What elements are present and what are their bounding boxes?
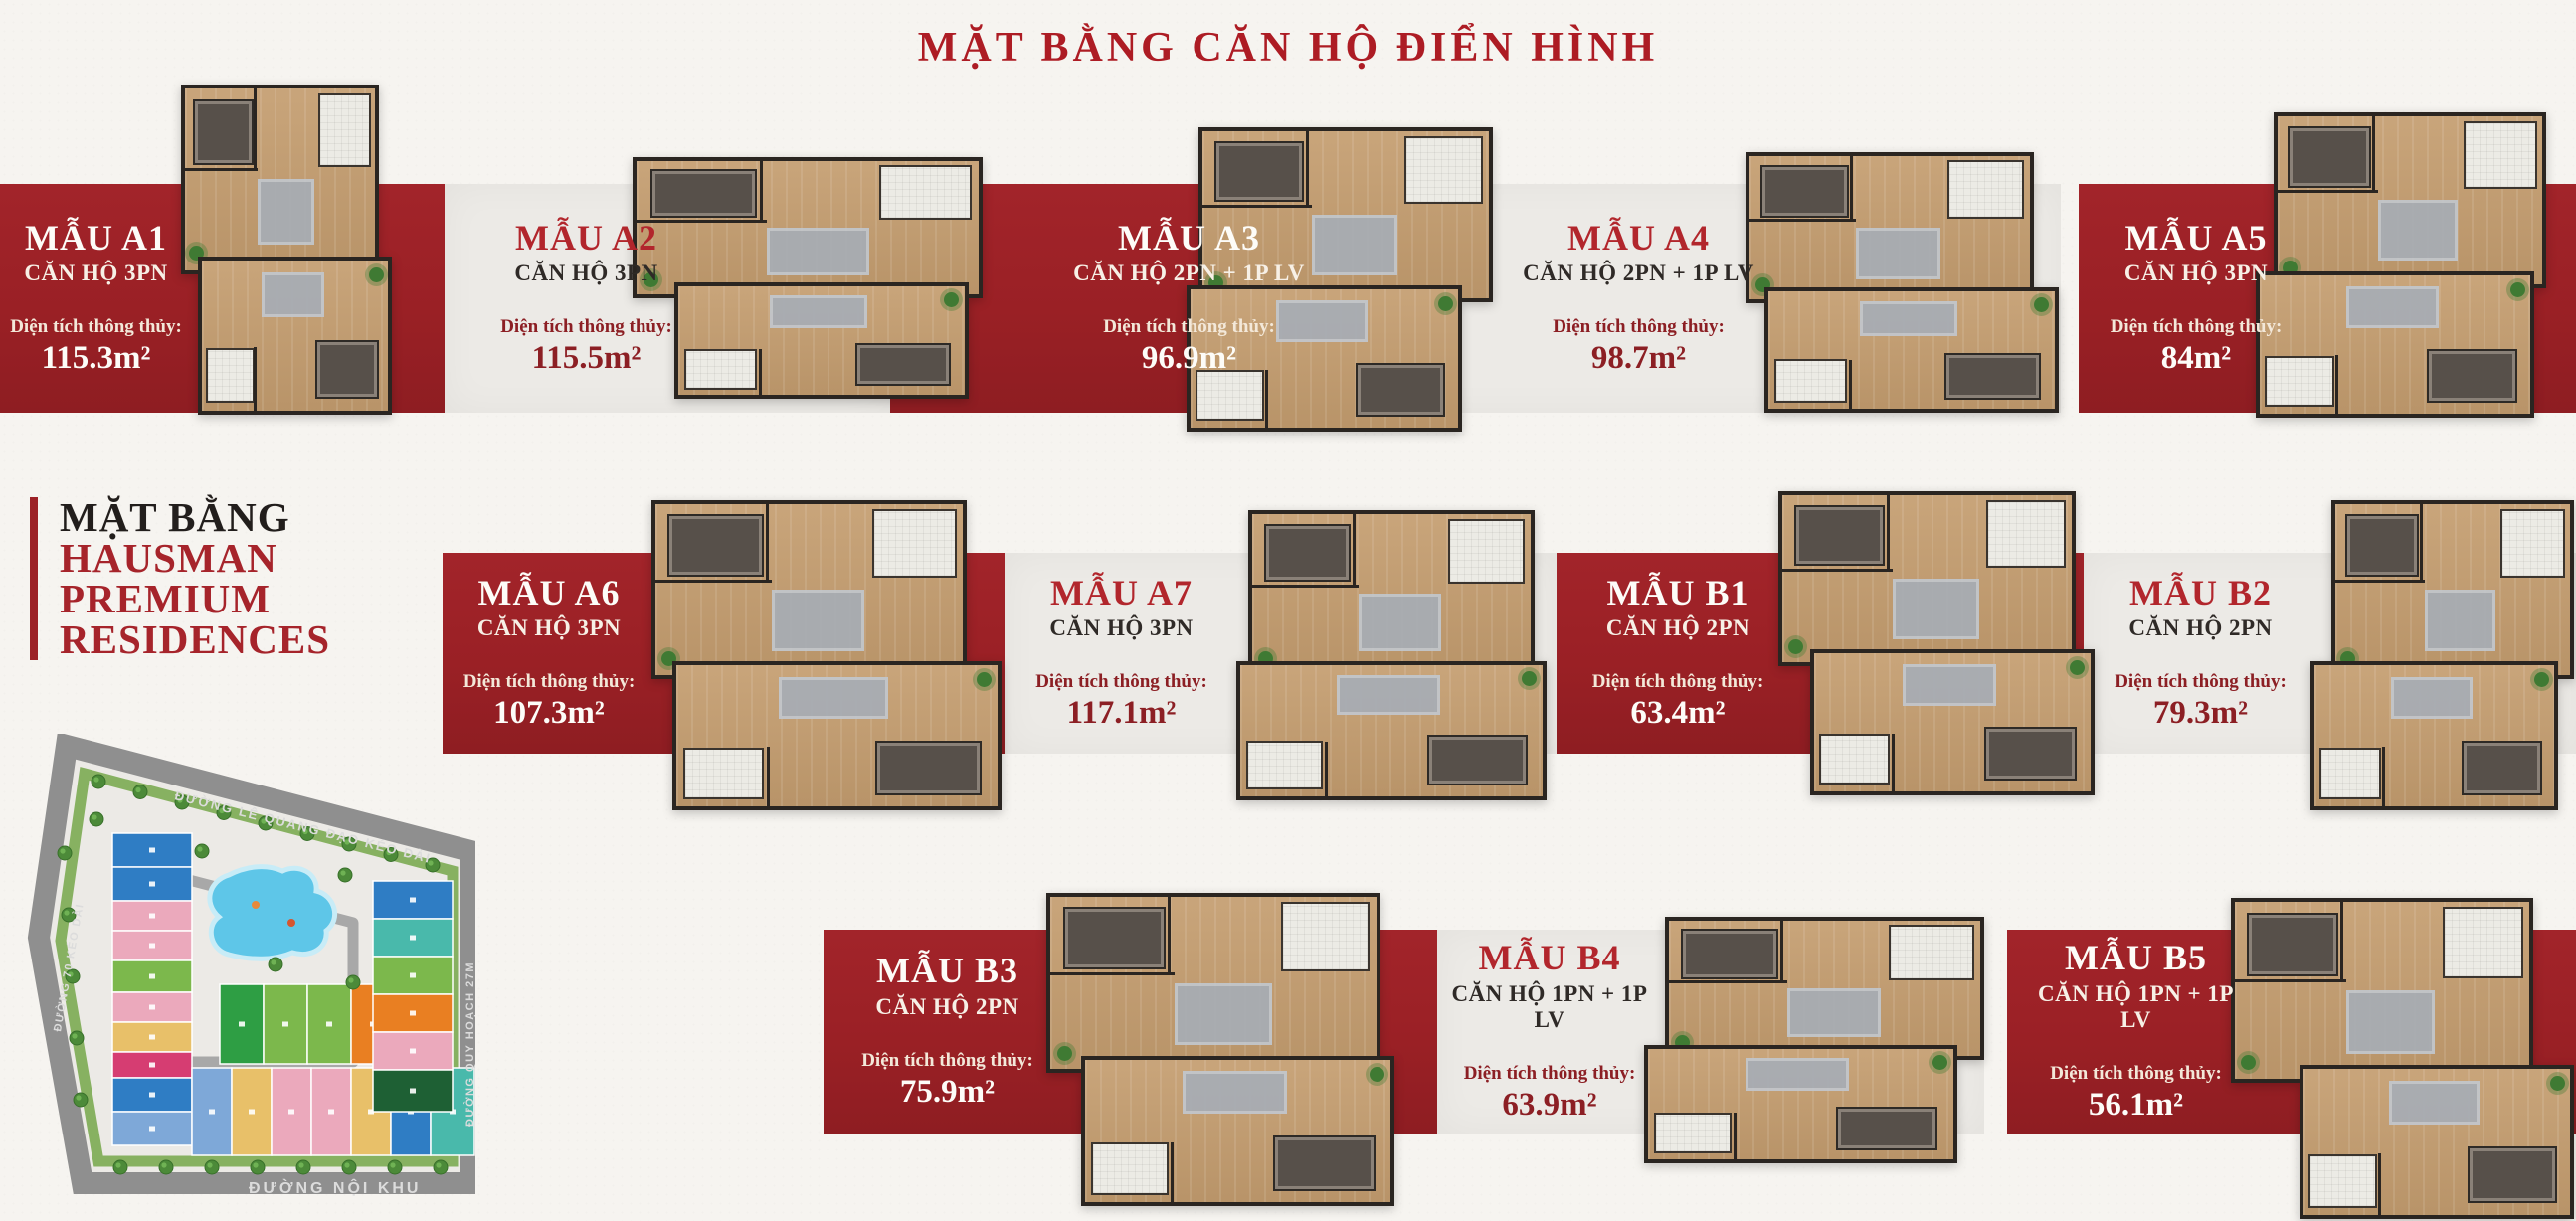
- map-tree-highlight: [72, 1033, 77, 1038]
- map-building-window: [410, 1011, 416, 1016]
- unit-type: CĂN HỘ 2PN: [1606, 615, 1749, 641]
- plan-detail: [254, 88, 257, 168]
- unit-area-value: 115.5m²: [532, 340, 642, 377]
- map-tree: [205, 1160, 219, 1174]
- plan-section: [1778, 491, 2076, 666]
- plan-section: [651, 500, 967, 679]
- unit-area-label: Diện tích thông thủy:: [1464, 1063, 1636, 1085]
- plan-detail: [193, 99, 254, 165]
- floorplan-a4: [1746, 152, 2059, 413]
- map-building-window: [410, 1089, 416, 1094]
- map-tree: [90, 812, 103, 826]
- plan-detail: [369, 267, 384, 282]
- plan-section: [2310, 661, 2558, 810]
- plan-detail: [2427, 349, 2517, 403]
- unit-card-b4: MẪU B4 CĂN HỘ 1PN + 1P LV Diện tích thôn…: [1440, 930, 1659, 1134]
- map-tree-highlight: [197, 846, 202, 851]
- plan-detail: [1325, 742, 1328, 797]
- unit-area-label: Diện tích thông thủy:: [1103, 316, 1275, 338]
- map-tree-highlight: [64, 910, 69, 915]
- plan-detail: [1252, 585, 1358, 588]
- unit-area-label: Diện tích thông thủy:: [2111, 316, 2283, 338]
- plan-detail: [254, 347, 257, 411]
- map-building-window: [282, 1022, 288, 1027]
- plan-detail: [1404, 136, 1483, 204]
- plan-detail: [2550, 1076, 2565, 1091]
- plan-section: [1746, 152, 2034, 303]
- map-tree-highlight: [390, 1162, 395, 1167]
- plan-detail: [779, 677, 888, 720]
- plan-detail: [1892, 734, 1895, 791]
- unit-area-value: 84m²: [2161, 340, 2231, 377]
- floorplan-a6: [651, 500, 1002, 810]
- map-tree-highlight: [344, 1162, 349, 1167]
- plan-detail: [2235, 979, 2346, 982]
- map-tree-highlight: [436, 1162, 441, 1167]
- plan-detail: [315, 340, 379, 398]
- plan-detail: [1788, 639, 1803, 654]
- road-label-right: ĐƯỜNG QUY HOẠCH 27M: [463, 961, 475, 1127]
- unit-type: CĂN HỘ 1PN + 1P LV: [2029, 981, 2243, 1033]
- plan-detail: [1281, 902, 1370, 971]
- map-tree-highlight: [60, 848, 65, 853]
- plan-detail: [879, 165, 972, 220]
- plan-detail: [206, 348, 255, 403]
- pool-float: [287, 919, 295, 927]
- plan-detail: [1337, 675, 1439, 715]
- plan-detail: [1746, 1058, 1849, 1091]
- unit-card-a1: MẪU A1 CĂN HỘ 3PN Diện tích thông thủy: …: [4, 184, 188, 413]
- plan-section: [1236, 661, 1547, 800]
- plan-detail: [2378, 1153, 2381, 1215]
- floorplan-b4: [1644, 917, 1984, 1163]
- plan-detail: [2346, 990, 2435, 1054]
- unit-area-label: Diện tích thông thủy:: [10, 316, 182, 338]
- unit-type: CĂN HỘ 1PN + 1P LV: [1440, 981, 1659, 1033]
- page-title: MẶT BẰNG CĂN HỘ ĐIỂN HÌNH: [0, 24, 2576, 72]
- unit-type: CĂN HỘ 3PN: [514, 261, 657, 286]
- plan-detail: [1175, 983, 1272, 1045]
- plan-detail: [1063, 907, 1165, 969]
- unit-area-value: 75.9m²: [900, 1074, 995, 1111]
- plan-detail: [2425, 590, 2495, 651]
- plan-detail: [1984, 727, 2077, 781]
- site-map: ĐƯỜNG LÊ QUANG ĐẠO KÉO DÀI ĐƯỜNG 70 KÉO …: [25, 734, 475, 1221]
- plan-detail: [667, 514, 764, 576]
- plan-detail: [258, 179, 314, 245]
- plan-detail: [760, 161, 763, 220]
- map-building-window: [149, 1035, 155, 1040]
- unit-area-label: Diện tích thông thủy:: [463, 671, 636, 693]
- unit-area-value: 79.3m²: [2153, 695, 2248, 732]
- unit-area-value: 63.9m²: [1502, 1087, 1596, 1124]
- map-tree: [251, 1160, 265, 1174]
- unit-card-a4: MẪU A4 CĂN HỘ 2PN + 1P LV Diện tích thôn…: [1507, 184, 1770, 413]
- plan-section: [672, 661, 1002, 810]
- unit-type: CĂN HỘ 2PN + 1P LV: [1073, 261, 1305, 286]
- unit-area-value: 115.3m²: [42, 340, 151, 377]
- unit-type: CĂN HỘ 2PN: [2128, 615, 2272, 641]
- unit-name: MẪU B3: [876, 953, 1018, 990]
- plan-detail: [767, 747, 770, 806]
- map-tree-highlight: [207, 1162, 212, 1167]
- floorplan-b3: [1046, 893, 1394, 1206]
- map-tree: [92, 775, 105, 788]
- plan-detail: [1836, 1107, 1937, 1150]
- map-tree-highlight: [340, 870, 345, 875]
- unit-name: MẪU B5: [2065, 940, 2207, 977]
- map-tree: [113, 1160, 127, 1174]
- map-building-window: [410, 936, 416, 941]
- plan-detail: [683, 748, 764, 799]
- plan-detail: [2340, 902, 2343, 979]
- unit-area-label: Diện tích thông thủy:: [861, 1050, 1033, 1072]
- plan-detail: [2534, 672, 2549, 687]
- unit-name: MẪU A4: [1567, 220, 1710, 258]
- unit-card-b2: MẪU B2 CĂN HỘ 2PN Diện tích thông thủy: …: [2094, 553, 2307, 754]
- map-tree: [296, 1160, 310, 1174]
- map-tree: [346, 975, 360, 989]
- plan-detail: [1932, 1055, 1947, 1070]
- plan-detail: [770, 295, 867, 328]
- plan-section: [1665, 917, 1984, 1060]
- plan-detail: [1774, 359, 1847, 403]
- map-building-window: [328, 1110, 334, 1115]
- map-building-window: [410, 1049, 416, 1054]
- plan-detail: [1681, 929, 1778, 978]
- plan-detail: [767, 228, 869, 275]
- plan-detail: [1669, 980, 1787, 983]
- plan-detail: [2288, 126, 2371, 187]
- plan-detail: [1893, 579, 1979, 639]
- map-tree-highlight: [161, 1162, 166, 1167]
- project-title: MẶT BẰNG HAUSMAN PREMIUM RESIDENCES: [30, 497, 330, 660]
- plan-detail: [1850, 156, 1853, 219]
- plan-detail: [655, 580, 772, 583]
- plan-section: [198, 257, 392, 415]
- plan-detail: [2345, 514, 2420, 576]
- plan-detail: [1246, 741, 1323, 789]
- plan-detail: [2391, 677, 2473, 720]
- plan-detail: [872, 509, 956, 578]
- floorplan-b5: [2231, 898, 2574, 1219]
- map-tree: [133, 785, 147, 799]
- plan-detail: [2346, 286, 2439, 328]
- plan-detail: [1168, 897, 1171, 972]
- plan-detail: [2510, 282, 2525, 297]
- unit-name: MẪU B1: [1607, 575, 1749, 612]
- plan-section: [2231, 898, 2533, 1083]
- plan-detail: [1427, 735, 1528, 786]
- plan-detail: [1760, 165, 1849, 218]
- map-tree-highlight: [253, 1162, 258, 1167]
- unit-card-a3: MẪU A3 CĂN HỘ 2PN + 1P LV Diện tích thôn…: [1042, 184, 1336, 413]
- plan-detail: [2372, 116, 2375, 190]
- plan-detail: [1438, 296, 1453, 311]
- plan-detail: [2335, 580, 2425, 583]
- plan-detail: [262, 272, 325, 317]
- map-building-window: [149, 944, 155, 949]
- unit-name: MẪU B4: [1479, 940, 1621, 977]
- plan-detail: [772, 590, 864, 651]
- plan-detail: [2070, 660, 2085, 675]
- unit-area-label: Diện tích thông thủy:: [2115, 671, 2287, 693]
- plan-section: [1644, 1045, 1957, 1163]
- map-tree-highlight: [93, 777, 98, 782]
- unit-type: CĂN HỘ 3PN: [2124, 261, 2268, 286]
- plan-detail: [1782, 569, 1893, 572]
- plan-detail: [2382, 747, 2385, 806]
- floorplan-a7: [1236, 510, 1547, 800]
- plan-detail: [1860, 301, 1957, 336]
- unit-card-b3: MẪU B3 CĂN HỘ 2PN Diện tích thông thủy: …: [845, 930, 1049, 1134]
- project-title-line: RESIDENCES: [60, 619, 330, 660]
- plan-detail: [1359, 594, 1442, 651]
- plan-detail: [318, 93, 372, 166]
- project-title-line: HAUSMAN: [60, 538, 330, 579]
- plan-detail: [977, 672, 992, 687]
- unit-card-a2: MẪU A2 CĂN HỘ 3PN Diện tích thông thủy: …: [450, 184, 723, 413]
- pool: [210, 867, 335, 959]
- plan-detail: [2420, 504, 2423, 580]
- plan-detail: [2378, 200, 2458, 261]
- plan-detail: [1947, 160, 2024, 219]
- map-building-window: [149, 848, 155, 853]
- unit-area-label: Diện tích thông thủy:: [1553, 316, 1725, 338]
- plan-detail: [759, 349, 762, 395]
- plan-detail: [1522, 671, 1537, 686]
- plan-detail: [944, 292, 959, 307]
- plan-detail: [1787, 988, 1881, 1037]
- unit-name: MẪU A6: [478, 575, 621, 612]
- map-tree-highlight: [76, 1095, 81, 1100]
- plan-detail: [2468, 1146, 2557, 1203]
- plan-section: [181, 85, 379, 274]
- unit-name: MẪU B2: [2129, 575, 2272, 612]
- project-title-line: PREMIUM: [60, 579, 330, 619]
- brochure-canvas: MẶT BẰNG CĂN HỘ ĐIỂN HÌNH MẪU A1 CĂN HỘ …: [0, 0, 2576, 1221]
- unit-area-label: Diện tích thông thủy:: [1035, 671, 1207, 693]
- map-building-window: [149, 882, 155, 887]
- unit-area-value: 98.7m²: [1591, 340, 1686, 377]
- plan-detail: [1944, 353, 2040, 399]
- map-tree: [159, 1160, 173, 1174]
- plan-detail: [1794, 505, 1885, 566]
- map-building-window: [149, 1127, 155, 1132]
- map-building-window: [326, 1022, 332, 1027]
- plan-section: [2274, 112, 2546, 288]
- map-tree: [58, 846, 72, 860]
- plan-detail: [855, 343, 951, 386]
- unit-card-b1: MẪU B1 CĂN HỘ 2PN Diện tích thông thủy: …: [1573, 553, 1782, 754]
- unit-card-a6: MẪU A6 CĂN HỘ 3PN Diện tích thông thủy: …: [450, 553, 648, 754]
- map-tree-highlight: [135, 787, 140, 792]
- plan-detail: [2500, 509, 2565, 578]
- plan-detail: [1889, 925, 1974, 980]
- plan-detail: [1856, 228, 1940, 279]
- map-building-window: [149, 1063, 155, 1068]
- floorplan-a1: [181, 85, 392, 415]
- map-tree-highlight: [348, 977, 353, 982]
- plan-section: [1810, 649, 2095, 795]
- unit-type: CĂN HỘ 2PN: [875, 994, 1018, 1020]
- unit-area-label: Diện tích thông thủy:: [2050, 1063, 2222, 1085]
- plan-detail: [1091, 1142, 1169, 1195]
- unit-type: CĂN HỘ 3PN: [24, 261, 167, 286]
- plan-detail: [1780, 921, 1783, 980]
- map-building-window: [149, 914, 155, 919]
- map-tree: [342, 1160, 356, 1174]
- map-tree: [74, 1093, 88, 1107]
- plan-detail: [1986, 500, 2066, 568]
- title-accent-bar: [30, 497, 38, 660]
- unit-name: MẪU A1: [25, 220, 167, 258]
- unit-area-value: 107.3m²: [493, 695, 605, 732]
- plan-detail: [2241, 1055, 2256, 1070]
- unit-name: MẪU A7: [1050, 575, 1193, 612]
- map-tree-highlight: [298, 1162, 303, 1167]
- map-building-window: [149, 1005, 155, 1010]
- unit-name: MẪU A5: [2125, 220, 2268, 258]
- plan-detail: [2443, 907, 2523, 978]
- plan-detail: [1903, 664, 1997, 706]
- unit-card-a5: MẪU A5 CĂN HỘ 3PN Diện tích thông thủy: …: [2087, 184, 2305, 413]
- unit-area-value: 56.1m²: [2089, 1087, 2183, 1124]
- map-building-window: [410, 898, 416, 903]
- map-building-window: [209, 1110, 215, 1115]
- map-tree: [434, 1160, 448, 1174]
- plan-detail: [2308, 1154, 2376, 1208]
- plan-detail: [1264, 524, 1352, 583]
- map-building-window: [239, 1022, 245, 1027]
- plan-section: [2331, 500, 2574, 679]
- plan-section: [1081, 1056, 1394, 1206]
- plan-detail: [1273, 1135, 1375, 1191]
- unit-type: CĂN HỘ 3PN: [477, 615, 621, 641]
- floorplan-b1: [1778, 491, 2095, 795]
- map-tree-highlight: [115, 1162, 120, 1167]
- plan-section: [2300, 1065, 2574, 1219]
- road-label-bottom: ĐƯỜNG NỘI KHU: [249, 1178, 421, 1197]
- unit-area-value: 63.4m²: [1630, 695, 1725, 732]
- plan-detail: [1050, 972, 1175, 975]
- plan-detail: [2464, 121, 2536, 189]
- map-tree: [269, 958, 282, 971]
- unit-name: MẪU A2: [515, 220, 657, 258]
- map-building-window: [149, 974, 155, 979]
- map-tree: [70, 1031, 84, 1045]
- plan-detail: [1171, 1142, 1174, 1202]
- map-tree-highlight: [271, 959, 276, 964]
- map-tree: [338, 868, 352, 882]
- plan-detail: [2335, 355, 2338, 414]
- unit-area-value: 96.9m²: [1142, 340, 1236, 377]
- unit-card-b5: MẪU B5 CĂN HỘ 1PN + 1P LV Diện tích thôn…: [2029, 930, 2243, 1134]
- map-building-window: [149, 1093, 155, 1098]
- map-tree-highlight: [92, 814, 96, 819]
- plan-detail: [2389, 1081, 2480, 1125]
- plan-detail: [1356, 363, 1445, 417]
- plan-detail: [1448, 519, 1525, 584]
- map-building-window: [249, 1110, 255, 1115]
- plan-section: [1046, 893, 1380, 1073]
- unit-area-value: 117.1m²: [1067, 695, 1177, 732]
- unit-area-label: Diện tích thông thủy:: [500, 316, 672, 338]
- plan-detail: [1353, 514, 1356, 585]
- plan-detail: [2462, 741, 2542, 795]
- unit-name: MẪU A3: [1118, 220, 1260, 258]
- plan-detail: [1849, 360, 1852, 409]
- plan-detail: [1819, 734, 1890, 785]
- map-tree: [195, 844, 209, 858]
- unit-area-label: Diện tích thông thủy:: [1592, 671, 1764, 693]
- map-building-window: [288, 1110, 294, 1115]
- plan-detail: [2034, 297, 2049, 312]
- map-building-window: [410, 973, 416, 978]
- plan-detail: [1183, 1071, 1286, 1114]
- plan-detail: [2319, 748, 2381, 799]
- plan-detail: [2247, 913, 2339, 976]
- project-title-line: MẶT BẰNG: [60, 497, 330, 538]
- floorplan-b2: [2310, 500, 2574, 810]
- plan-detail: [185, 168, 258, 171]
- plan-detail: [1370, 1067, 1384, 1082]
- unit-type: CĂN HỘ 3PN: [1049, 615, 1193, 641]
- map-tree: [388, 1160, 402, 1174]
- plan-detail: [1654, 1113, 1732, 1154]
- plan-detail: [1057, 1046, 1072, 1061]
- plan-detail: [1734, 1113, 1737, 1159]
- plan-section: [1248, 510, 1534, 678]
- plan-section: [1764, 287, 2059, 413]
- plan-detail: [1887, 495, 1890, 569]
- unit-card-a7: MẪU A7 CĂN HỘ 3PN Diện tích thông thủy: …: [1019, 553, 1223, 754]
- unit-type: CĂN HỘ 2PN + 1P LV: [1523, 261, 1754, 286]
- plan-detail: [766, 504, 769, 580]
- plan-detail: [875, 741, 982, 795]
- pool-float: [252, 901, 260, 909]
